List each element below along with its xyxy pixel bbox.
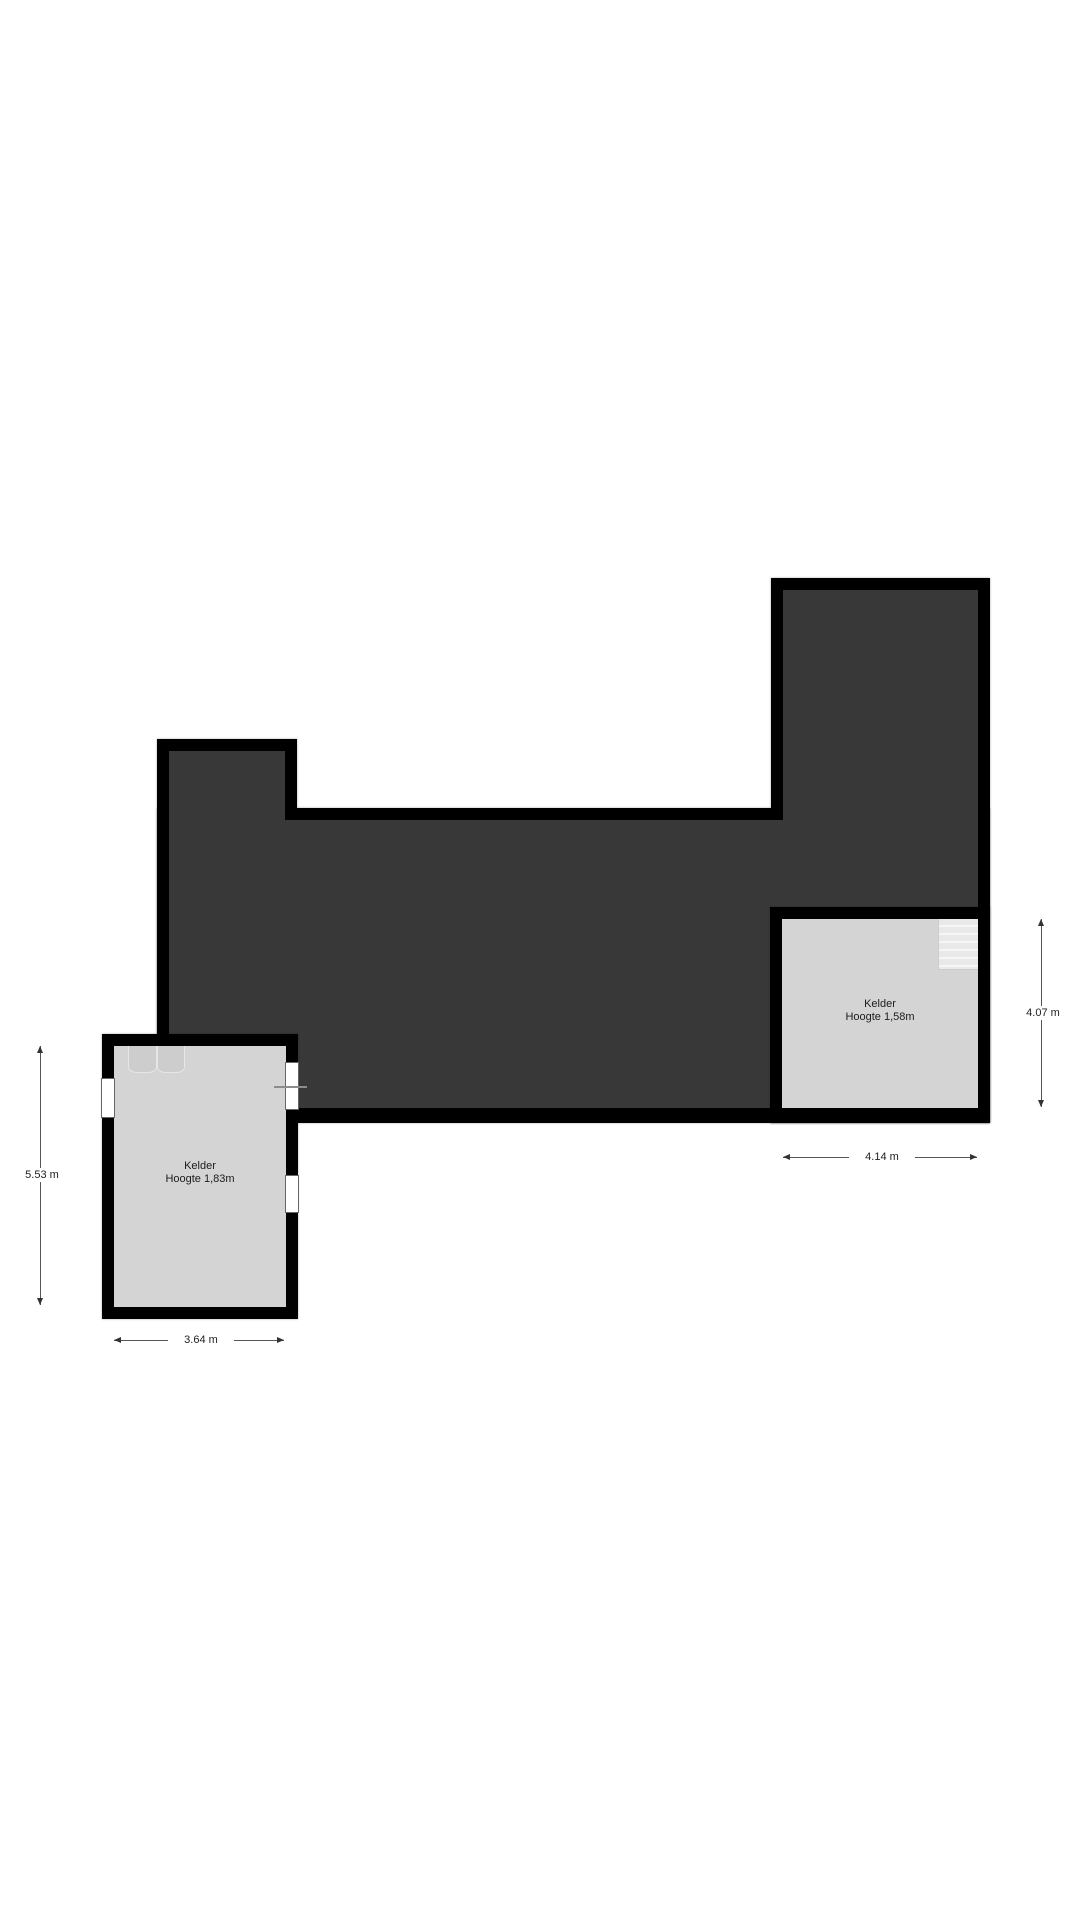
- arrow-left-icon: [783, 1154, 790, 1160]
- arrow-up-icon: [37, 1046, 43, 1053]
- window: [285, 1175, 299, 1213]
- floorplan-canvas: Kelder Hoogte 1,58m Kelder Hoogte 1,83m …: [0, 0, 1080, 1920]
- left-room-height: Hoogte 1,83m: [114, 1173, 286, 1186]
- right-room-height: Hoogte 1,58m: [782, 1011, 978, 1024]
- door-marker: [274, 1086, 307, 1088]
- right-room-name: Kelder: [782, 998, 978, 1011]
- arrow-left-icon: [114, 1337, 121, 1343]
- arrow-right-icon: [277, 1337, 284, 1343]
- right-room-label: Kelder Hoogte 1,58m: [782, 998, 978, 1024]
- left-room-name: Kelder: [114, 1160, 286, 1173]
- dimension-label: 4.14 m: [849, 1150, 915, 1164]
- dimension-label: 4.07 m: [1012, 1006, 1074, 1020]
- arrow-down-icon: [37, 1298, 43, 1305]
- arrow-down-icon: [1038, 1100, 1044, 1107]
- dimension-label: 5.53 m: [11, 1168, 73, 1182]
- left-room-label: Kelder Hoogte 1,83m: [114, 1160, 286, 1186]
- window: [101, 1078, 115, 1118]
- arrow-up-icon: [1038, 919, 1044, 926]
- arrow-right-icon: [970, 1154, 977, 1160]
- dimension-label: 3.64 m: [168, 1333, 234, 1347]
- hatch-icon: [128, 1046, 185, 1073]
- staircase-icon: [938, 919, 978, 970]
